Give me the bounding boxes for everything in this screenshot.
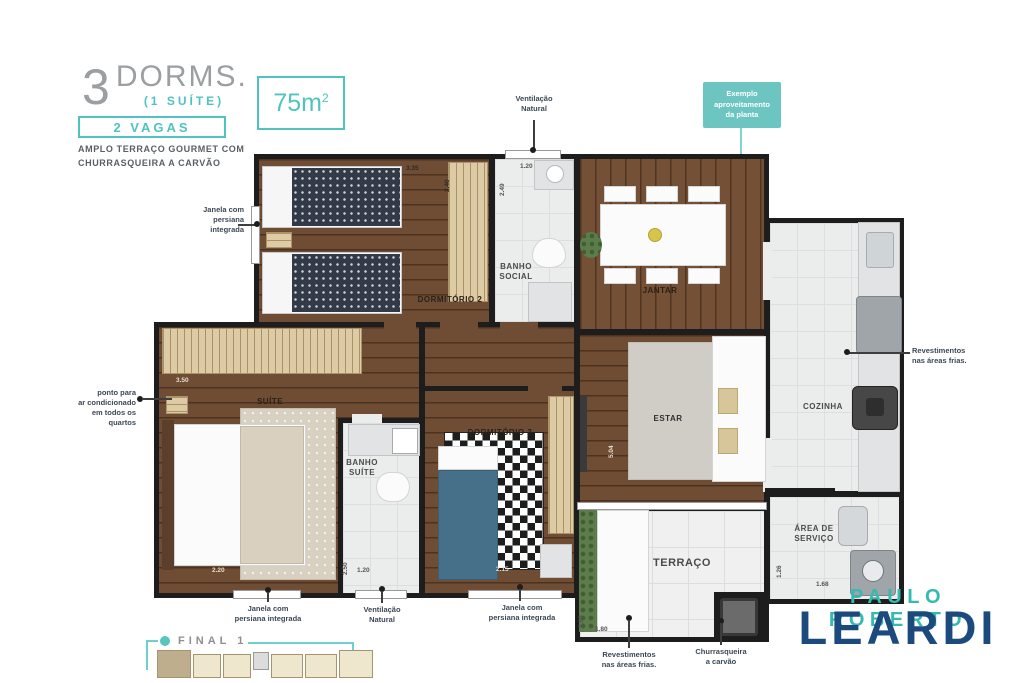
desk-dorm3 (540, 544, 572, 578)
churrasqueira-leader (720, 623, 722, 645)
chair-jantar-4 (604, 268, 636, 284)
label-banho-social: BANHO SOCIAL (494, 262, 538, 283)
bed-suite-blanket (240, 426, 304, 564)
tv-panel (580, 396, 587, 472)
vertical-garden (579, 510, 597, 632)
laundry-sink (838, 506, 868, 546)
chair-jantar-5 (646, 268, 678, 284)
area-superscript: 2 (322, 91, 329, 105)
bed-dorm3-pillow (438, 446, 498, 470)
door-suite (384, 318, 416, 330)
keyplan-building (157, 650, 373, 678)
churrasqueira-grill (720, 598, 758, 636)
label-suite: SUÍTE (240, 397, 300, 407)
callout-ar-condicionado: ponto para ar condicionado em todos os q… (62, 388, 136, 429)
callout-churrasqueira: Churrasqueira a carvão (684, 647, 758, 667)
bedroom-count: 3 (82, 62, 110, 112)
keyplan-unit-3 (223, 654, 251, 678)
dim-banho-social-height: 2.49 (499, 183, 506, 196)
stove-grate (866, 398, 884, 416)
keyplan-bracket-right-top (248, 642, 354, 644)
plan-note-line1: Exemplo (726, 89, 757, 100)
brand-line2: LEARDI (782, 606, 1014, 651)
tagline: AMPLO TERRAÇO GOURMET COM CHURRASQUEIRA … (78, 143, 245, 170)
vent-top-leader (533, 120, 535, 150)
tagline-line1: AMPLO TERRAÇO GOURMET COM (78, 144, 245, 154)
final1-dot (160, 636, 170, 646)
door-banho-suite (352, 414, 382, 423)
nightstand-dorm2 (266, 232, 292, 248)
floorplan-page: 3 DORMS. (1 SUÍTE) 2 VAGAS AMPLO TERRAÇO… (0, 0, 1024, 683)
label-area-servico: ÁREA DE SERVIÇO (786, 524, 842, 545)
door-dormitorio2 (440, 322, 478, 331)
bed-suite-headboard (162, 420, 174, 570)
tagline-line2: CHURRASQUEIRA A CARVÃO (78, 158, 221, 168)
vagas-label: 2 VAGAS (113, 120, 190, 135)
revestimentos-bottom-leader (628, 620, 630, 648)
bench-terraco (597, 510, 649, 632)
dim-banho-suite-width: 1.20 (357, 567, 370, 574)
chair-jantar-2 (646, 186, 678, 202)
plan-note-badge: Exemplo aproveitamento da planta (703, 82, 781, 128)
rug-estar (628, 342, 714, 480)
label-jantar: JANTAR (630, 286, 690, 296)
revestimentos-right-dot (844, 349, 850, 355)
keyplan-bracket-left-top (146, 640, 158, 642)
plan-title: 3 DORMS. (1 SUÍTE) (82, 62, 248, 112)
sink-banho-social (546, 165, 564, 183)
plan-note-line2: aproveitamento (714, 100, 770, 111)
bed-dorm2-a-blanket (292, 168, 400, 226)
keyplan-unit-1-highlighted (157, 650, 191, 678)
dim-estar-height: 5.04 (608, 445, 615, 458)
vent-top-dot (530, 147, 536, 153)
callout-vent-top: Ventilação Natural (500, 94, 568, 114)
window-dormitorio2 (251, 206, 260, 264)
callout-janela-dorm3: Janela com persiana integrada (478, 603, 566, 623)
callout-vent-bottom: Ventilação Natural (348, 605, 416, 625)
callout-janela-suite: Janela com persiana integrada (224, 604, 312, 624)
plant-jantar (580, 232, 602, 258)
final1-label: FINAL 1 (178, 635, 247, 647)
label-banho-suite: BANHO SUÍTE (342, 458, 382, 479)
area-value: 75m (273, 89, 322, 118)
ar-condicionado-leader (142, 398, 172, 400)
keyplan-unit-2 (193, 654, 221, 678)
sofa-cushion-1 (718, 388, 738, 414)
title-dorms: DORMS. (116, 60, 248, 93)
chair-jantar-6 (688, 268, 720, 284)
janela-left-dot (254, 221, 260, 227)
janela-suite-leader (267, 592, 269, 602)
dining-table (600, 204, 726, 266)
opening-jantar-cozinha (763, 242, 772, 300)
label-dormitorio3: DORMITÓRIO 3 (448, 428, 552, 438)
chair-jantar-1 (604, 186, 636, 202)
dim-dorm2-height: 2.40 (444, 179, 451, 192)
door-dormitorio3 (528, 386, 562, 395)
dim-banho-social-width: 1.20 (520, 163, 533, 170)
washing-machine-door (862, 560, 884, 582)
callout-revestimentos-right: Revestimentos nas áreas frias. (912, 346, 982, 366)
wardrobe-suite (162, 328, 362, 374)
callout-janela-left: Janela com persiana integrada (188, 205, 244, 235)
keyplan-unit-6 (339, 650, 373, 678)
glass-door-terraco (577, 502, 767, 510)
bed-dorm2-b-blanket (292, 254, 400, 312)
dim-terraco-width: 1.80 (595, 626, 608, 633)
label-estar: ESTAR (648, 414, 688, 424)
label-cozinha: COZINHA (796, 402, 850, 412)
keyplan-bracket-left (146, 640, 148, 670)
wardrobe-dorm3 (548, 396, 574, 534)
dim-dorm2-width: 3.35 (406, 165, 419, 172)
suite-note: (1 SUÍTE) (144, 94, 224, 108)
label-terraco: TERRAÇO (650, 556, 714, 570)
fridge (856, 296, 902, 354)
keyplan-unit-4 (271, 654, 303, 678)
revestimentos-right-leader (848, 352, 910, 354)
dim-dorm3-width: 2.15 (496, 566, 509, 573)
shower-banho-social (528, 282, 572, 322)
table-centerpiece (648, 228, 662, 242)
bed-dorm3 (438, 470, 498, 580)
shower-banho-suite (392, 428, 418, 454)
area-badge: 75m2 (257, 76, 345, 130)
dim-suite-width: 3.50 (176, 377, 189, 384)
window-dormitorio3 (468, 590, 562, 599)
callout-revestimentos-bottom: Revestimentos nas áreas frias. (592, 650, 666, 670)
keyplan-unit-5 (305, 654, 337, 678)
dim-suite-bottom: 2.20 (212, 567, 225, 574)
kitchen-sink (866, 232, 894, 268)
plan-note-line3: da planta (726, 110, 759, 121)
janela-dorm3-leader (519, 589, 521, 601)
dim-servico-height: 1.26 (776, 565, 783, 578)
label-dormitorio2: DORMITÓRIO 2 (398, 295, 502, 305)
chair-jantar-3 (688, 186, 720, 202)
wardrobe-dorm2 (448, 162, 488, 302)
door-banho-social (500, 322, 538, 331)
vagas-badge: 2 VAGAS (78, 116, 226, 138)
keyplan-core (253, 652, 269, 670)
dim-terraco-height: 2.80 (578, 615, 585, 628)
dim-banho-suite-height: 2.50 (342, 562, 349, 575)
wall-servico-divider (765, 488, 835, 494)
vent-bottom-leader (381, 591, 383, 603)
sofa-cushion-2 (718, 428, 738, 454)
